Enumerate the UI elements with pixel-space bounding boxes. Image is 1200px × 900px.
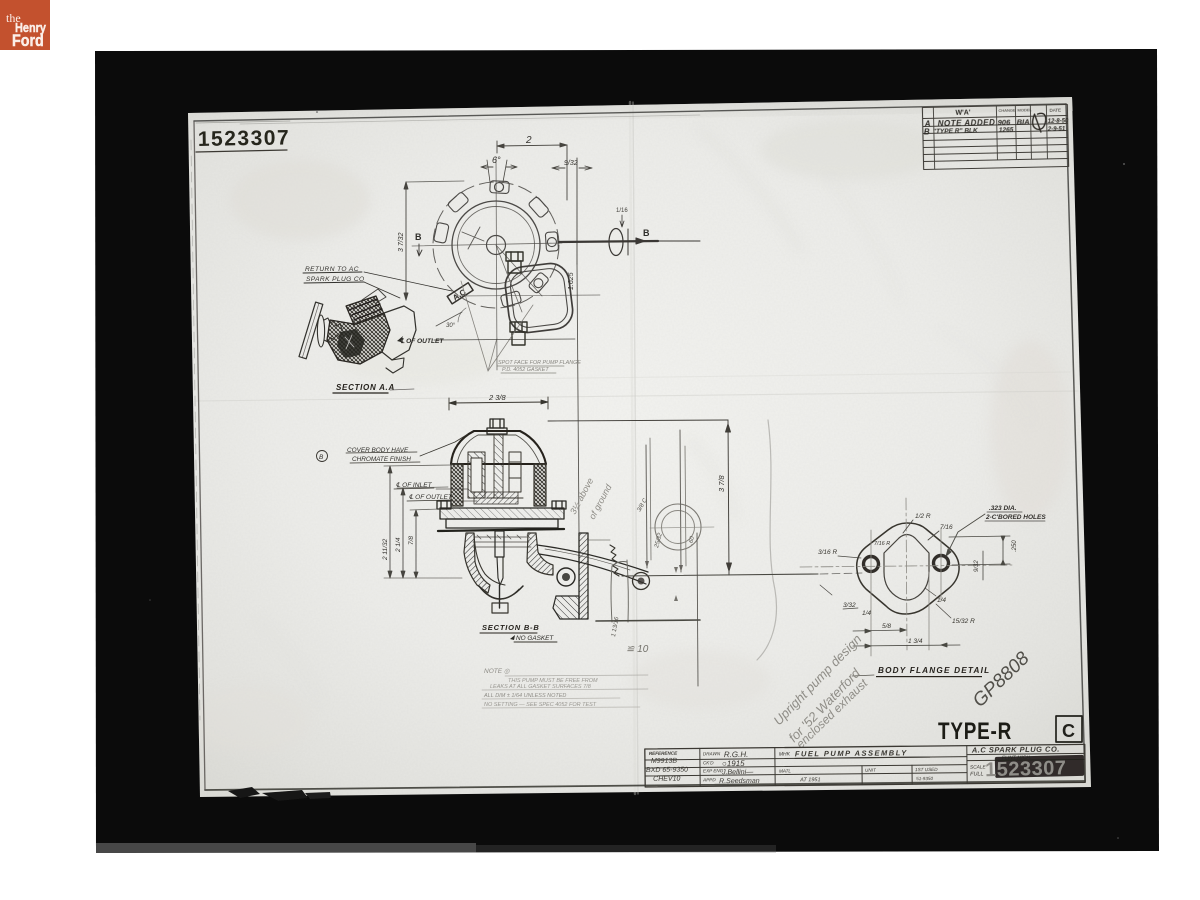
svg-text:.250: .250 xyxy=(1012,540,1018,552)
svg-text:B: B xyxy=(643,228,650,238)
svg-text:MODEL: MODEL xyxy=(1017,107,1032,112)
svg-text:5/8: 5/8 xyxy=(882,623,891,630)
svg-text:A.C SPARK PLUG CO.: A.C SPARK PLUG CO. xyxy=(971,745,1060,755)
svg-text:2 1/4: 2 1/4 xyxy=(395,537,402,553)
svg-text:1523307: 1523307 xyxy=(198,126,291,151)
svg-text:B: B xyxy=(319,454,324,461)
svg-text:EXP ENG: EXP ENG xyxy=(703,768,724,773)
svg-text:3/16 R: 3/16 R xyxy=(818,549,837,556)
svg-text:SPOT FACE FOR PUMP FLANGE: SPOT FACE FOR PUMP FLANGE xyxy=(498,360,581,366)
svg-text:.323 DIA.: .323 DIA. xyxy=(989,505,1017,512)
svg-text:15/32 R: 15/32 R xyxy=(952,618,975,625)
svg-text:MHK: MHK xyxy=(779,751,791,757)
svg-text:P.D. 4052 GASKET: P.D. 4052 GASKET xyxy=(502,367,549,373)
svg-text:3 7/32: 3 7/32 xyxy=(398,232,405,252)
svg-text:ALL DIM ± 1/64 UNLESS NOTED: ALL DIM ± 1/64 UNLESS NOTED xyxy=(483,693,566,699)
svg-text:○1915: ○1915 xyxy=(722,759,745,768)
svg-text:2-C'BORED HOLES: 2-C'BORED HOLES xyxy=(985,514,1046,521)
svg-text:B: B xyxy=(924,127,930,136)
svg-text:CHANGE: CHANGE xyxy=(998,108,1016,113)
svg-text:1.625: 1.625 xyxy=(568,272,575,290)
svg-text:BODY FLANGE DETAIL: BODY FLANGE DETAIL xyxy=(878,666,990,675)
svg-text:1/16: 1/16 xyxy=(616,208,628,214)
svg-text:BXD 65-9350: BXD 65-9350 xyxy=(646,767,688,774)
svg-text:9/32: 9/32 xyxy=(564,160,578,167)
svg-text:DATE: DATE xyxy=(1049,108,1061,113)
svg-text:"TYPE R" BLK: "TYPE R" BLK xyxy=(933,127,979,135)
svg-text:SECTION A.A: SECTION A.A xyxy=(336,383,395,392)
svg-text:W'A': W'A' xyxy=(955,110,970,117)
svg-text:AT 1951: AT 1951 xyxy=(799,777,820,783)
svg-text:REFERENCE: REFERENCE xyxy=(649,751,678,756)
svg-text:1265: 1265 xyxy=(999,127,1014,134)
svg-text:1 3/4: 1 3/4 xyxy=(908,638,923,645)
svg-text:B: B xyxy=(415,232,422,242)
svg-text:APPD: APPD xyxy=(702,777,716,782)
svg-text:LEAKS AT ALL GASKET SURFACES: LEAKS AT ALL GASKET SURFACES 7/8 xyxy=(490,684,592,690)
svg-text:CK'D: CK'D xyxy=(703,760,714,765)
svg-text:SECTION B-B: SECTION B-B xyxy=(482,623,540,632)
svg-text:2 3/8: 2 3/8 xyxy=(488,393,507,402)
svg-text:6°: 6° xyxy=(492,155,501,165)
svg-text:2-9-51: 2-9-51 xyxy=(1047,127,1066,133)
svg-text:C: C xyxy=(1062,721,1075,741)
svg-text:FULL: FULL xyxy=(970,771,984,777)
svg-text:M9913B: M9913B xyxy=(651,758,677,765)
svg-text:UNIT: UNIT xyxy=(865,768,877,773)
svg-text:7/16: 7/16 xyxy=(940,524,953,531)
svg-text:J.Bellini—: J.Bellini— xyxy=(721,769,754,776)
svg-text:NO GASKET: NO GASKET xyxy=(516,635,554,642)
svg-text:1ST USED: 1ST USED xyxy=(915,767,938,772)
svg-text:9/32: 9/32 xyxy=(974,560,980,572)
svg-text:1/4: 1/4 xyxy=(862,610,871,617)
svg-text:MATL: MATL xyxy=(779,768,791,773)
svg-text:30°: 30° xyxy=(446,323,456,329)
svg-text:7/8: 7/8 xyxy=(408,536,415,545)
svg-text:2: 2 xyxy=(525,135,532,146)
svg-text:NOTE ◎: NOTE ◎ xyxy=(484,668,511,675)
svg-text:CHEV10: CHEV10 xyxy=(653,776,680,783)
svg-text:BIA: BIA xyxy=(1017,117,1030,126)
svg-text:2 11/32: 2 11/32 xyxy=(382,538,389,561)
svg-text:≌ 10: ≌ 10 xyxy=(626,644,649,655)
svg-text:℄ OF OUTLET: ℄ OF OUTLET xyxy=(400,338,444,345)
svg-text:51-9350: 51-9350 xyxy=(916,776,933,781)
svg-text:906: 906 xyxy=(998,118,1012,127)
svg-text:R.G.H.: R.G.H. xyxy=(724,750,749,759)
svg-text:TYPE-R: TYPE-R xyxy=(938,718,1012,745)
svg-text:DRAWN: DRAWN xyxy=(703,751,721,756)
svg-text:1/4: 1/4 xyxy=(937,597,946,604)
svg-text:12-8-50: 12-8-50 xyxy=(1048,118,1069,124)
svg-text:1523307: 1523307 xyxy=(985,757,1067,781)
svg-text:3 7/8: 3 7/8 xyxy=(717,474,726,492)
svg-text:R.Seedsman: R.Seedsman xyxy=(719,778,760,785)
svg-text:1/2 R: 1/2 R xyxy=(915,513,931,520)
svg-text:7/16 R: 7/16 R xyxy=(874,541,890,547)
